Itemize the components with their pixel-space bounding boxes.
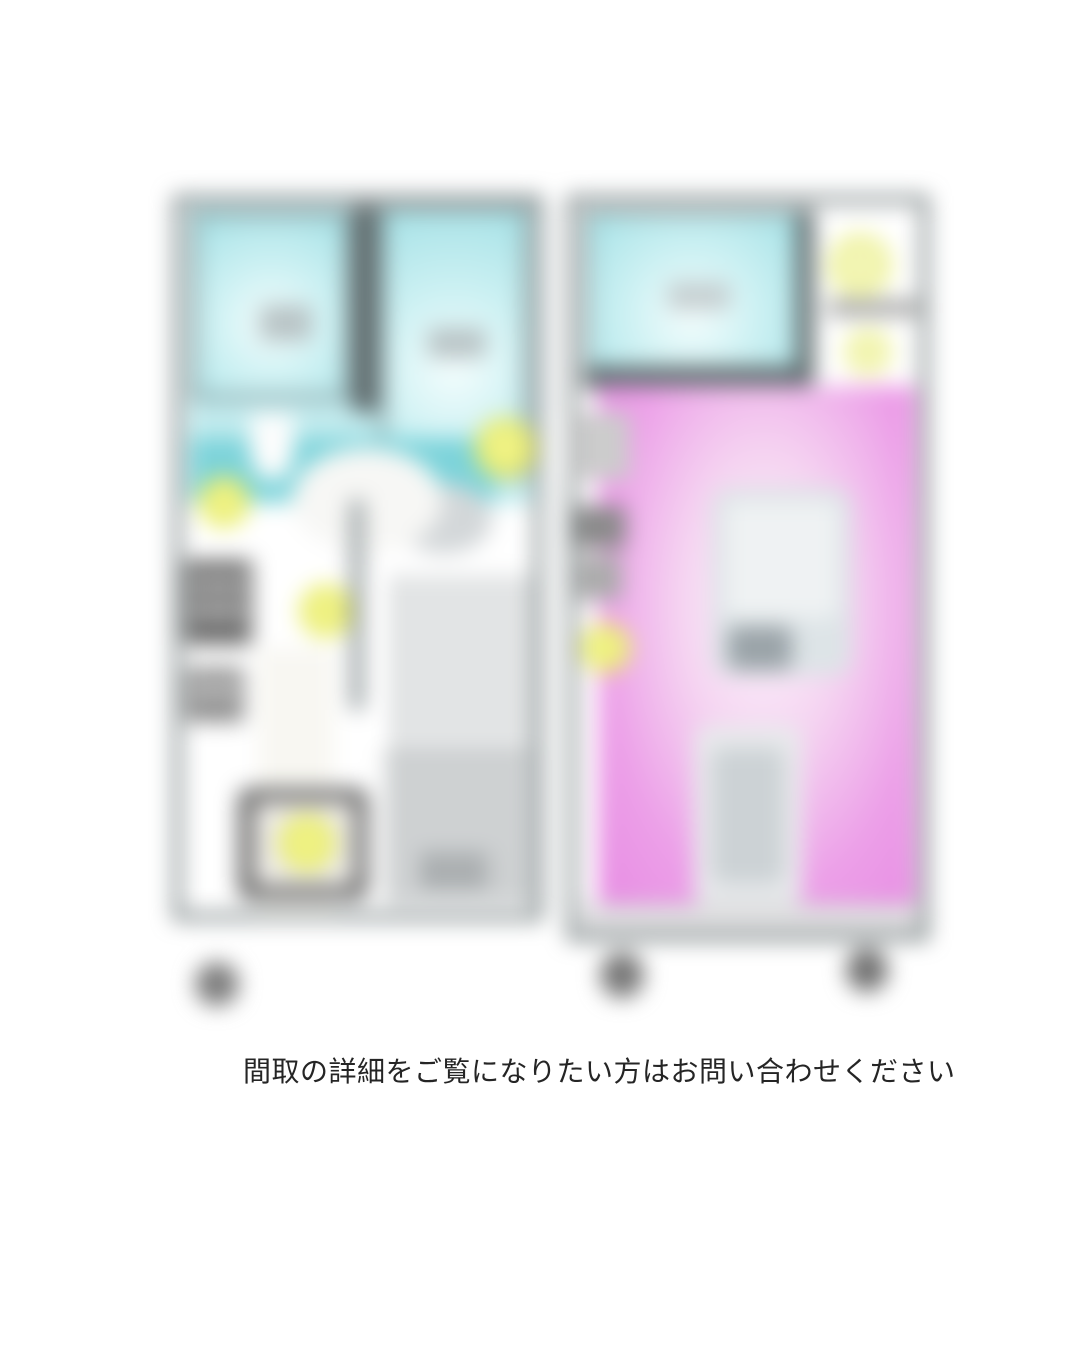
- room-2-label-blob: [428, 328, 486, 358]
- floor-1-label-blob: [195, 962, 239, 1006]
- highlight-circle-5: [827, 232, 893, 298]
- blurred-floorplan-image: [0, 0, 1080, 1060]
- table-chairs-dark: [728, 626, 792, 670]
- wc-divider-wall: [828, 300, 918, 316]
- room-1-label-blob: [260, 305, 312, 341]
- interior-wall-vertical: [798, 210, 814, 392]
- door-swing-shape: [250, 414, 294, 480]
- balcony-rail-line: [580, 916, 920, 923]
- counter-white-shape: [292, 448, 442, 552]
- dining-table-top: [726, 502, 838, 618]
- upper-stairs-block: [572, 412, 630, 480]
- highlight-circle-2: [197, 475, 251, 529]
- closet-dark-mark-2: [578, 556, 622, 600]
- stairs-landing-block: [420, 855, 490, 885]
- compass-mark-blob: [846, 948, 888, 992]
- room-3-label-blob: [668, 282, 730, 310]
- fixture-dark-box-1: [185, 560, 252, 645]
- fixture-box-line-1: [191, 580, 246, 589]
- floor-2-label-blob: [600, 952, 644, 998]
- contact-caption: 間取の詳細をご覧になりたい方はお問い合わせください: [243, 1054, 956, 1090]
- highlight-circle-7: [580, 622, 632, 674]
- highlight-circle-3: [298, 583, 354, 639]
- page: { "caption": { "text": "間取の詳細をご覧になりたい方はお…: [0, 0, 1080, 1350]
- fixture-box-line-2: [191, 606, 246, 615]
- highlight-circle-4: [277, 813, 337, 873]
- closet-dark-mark-1: [576, 506, 626, 548]
- highlight-circle-6: [844, 328, 892, 376]
- room-divider-wall: [352, 206, 378, 412]
- fixture-dark-box-2: [186, 668, 244, 722]
- sofa-furniture-inner: [712, 748, 784, 884]
- highlight-circle-1: [473, 416, 537, 480]
- fixture-box-line-3: [192, 686, 238, 695]
- interior-wall-segment: [350, 500, 364, 710]
